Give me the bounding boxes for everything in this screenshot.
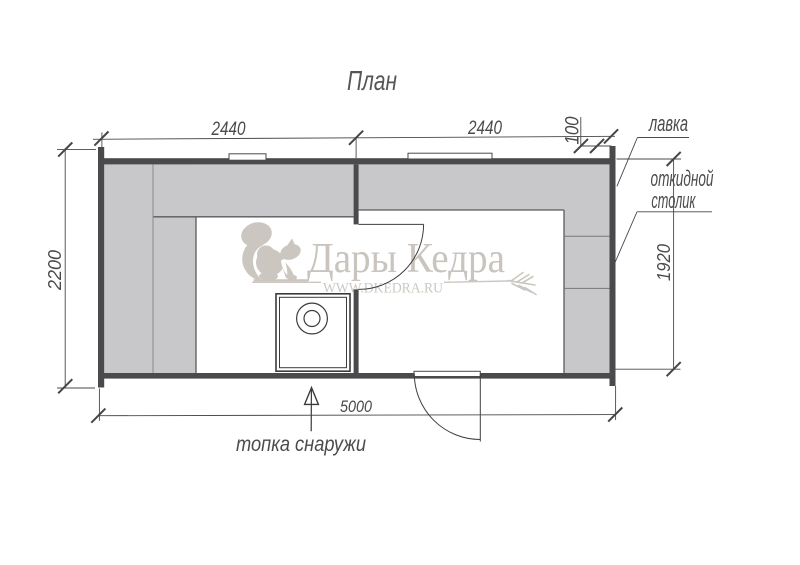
svg-text:лавка: лавка (648, 111, 688, 136)
svg-text:100: 100 (563, 116, 584, 144)
svg-text:2440: 2440 (211, 119, 246, 140)
svg-text:2440: 2440 (467, 118, 502, 139)
svg-text:5000: 5000 (340, 397, 372, 416)
svg-text:1920: 1920 (654, 244, 674, 281)
svg-text:топка снаружи: топка снаружи (236, 433, 366, 456)
svg-text:Дары Кедра: Дары Кедра (307, 236, 505, 282)
svg-text:План: План (347, 65, 397, 96)
svg-text:столик: столик (651, 188, 696, 213)
svg-text:2200: 2200 (45, 250, 65, 291)
